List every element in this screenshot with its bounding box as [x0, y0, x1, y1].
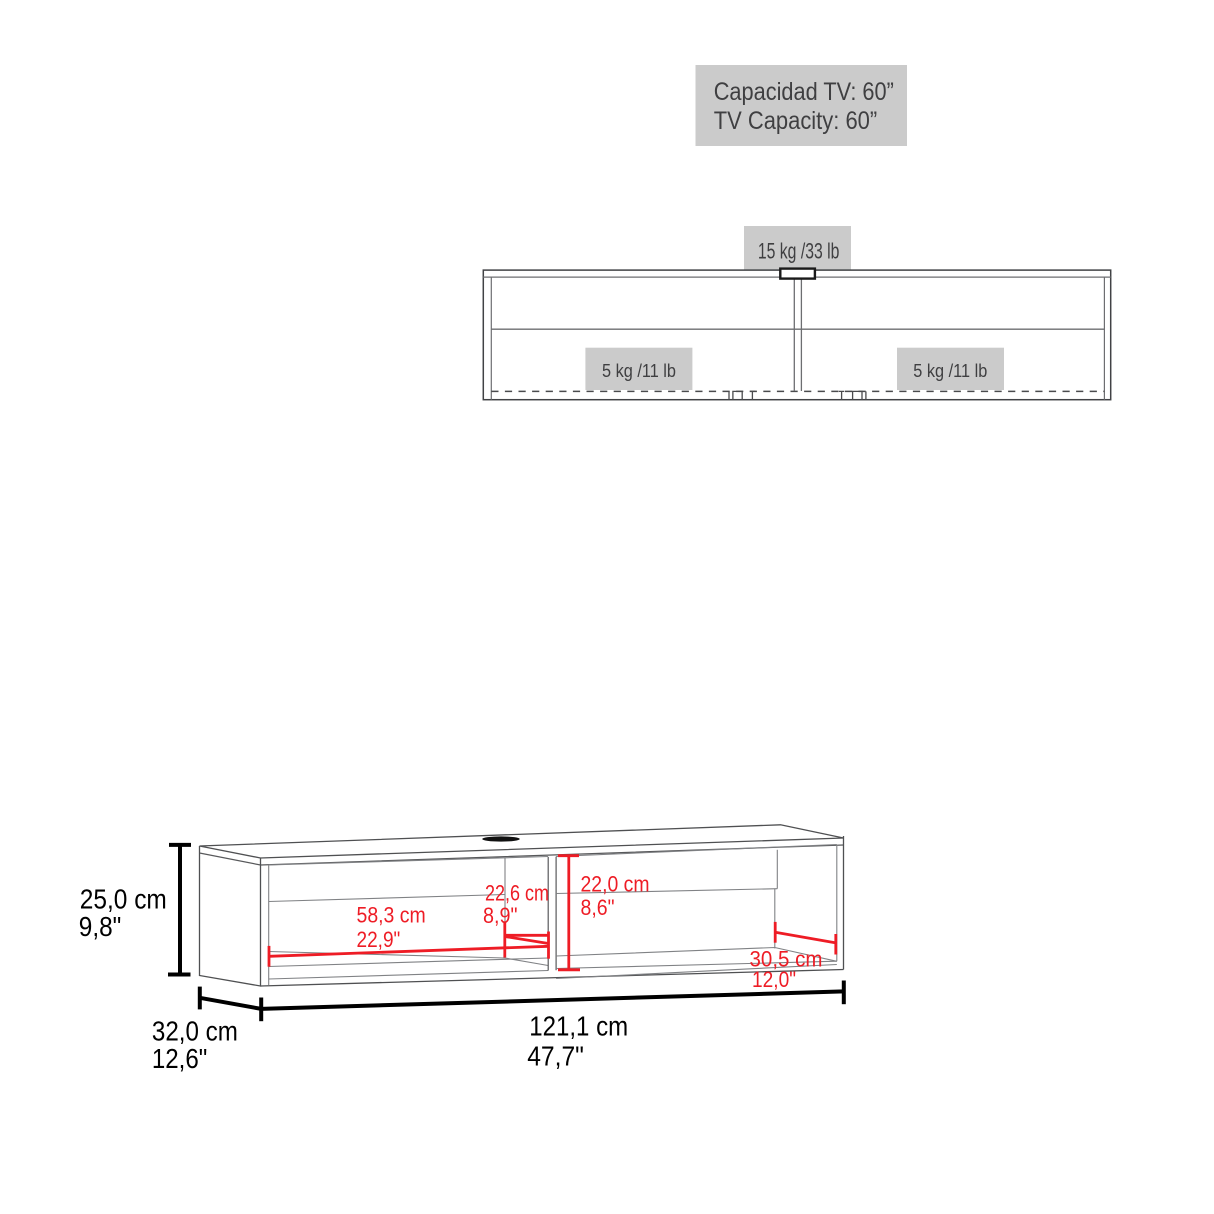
- svg-text:12,0": 12,0": [752, 967, 796, 992]
- svg-text:5 kg /11 lb: 5 kg /11 lb: [602, 360, 676, 381]
- svg-text:58,3 cm: 58,3 cm: [357, 903, 426, 928]
- svg-text:22,9": 22,9": [357, 927, 401, 952]
- svg-text:22,0 cm: 22,0 cm: [581, 871, 650, 896]
- svg-text:47,7": 47,7": [527, 1041, 584, 1072]
- svg-text:8,9": 8,9": [483, 903, 518, 928]
- svg-text:32,0 cm: 32,0 cm: [152, 1016, 238, 1047]
- svg-text:Capacidad TV: 60”: Capacidad TV: 60”: [714, 78, 894, 106]
- svg-text:15 kg /33 lb: 15 kg /33 lb: [758, 238, 840, 263]
- svg-text:TV Capacity: 60”: TV Capacity: 60”: [714, 107, 878, 135]
- svg-text:121,1 cm: 121,1 cm: [529, 1011, 628, 1042]
- svg-text:5 kg /11 lb: 5 kg /11 lb: [913, 360, 987, 381]
- svg-text:8,6": 8,6": [581, 895, 615, 920]
- svg-text:25,0 cm: 25,0 cm: [80, 884, 167, 915]
- svg-text:12,6": 12,6": [152, 1043, 207, 1074]
- svg-text:9,8": 9,8": [79, 911, 122, 942]
- svg-text:22,6 cm: 22,6 cm: [485, 881, 549, 906]
